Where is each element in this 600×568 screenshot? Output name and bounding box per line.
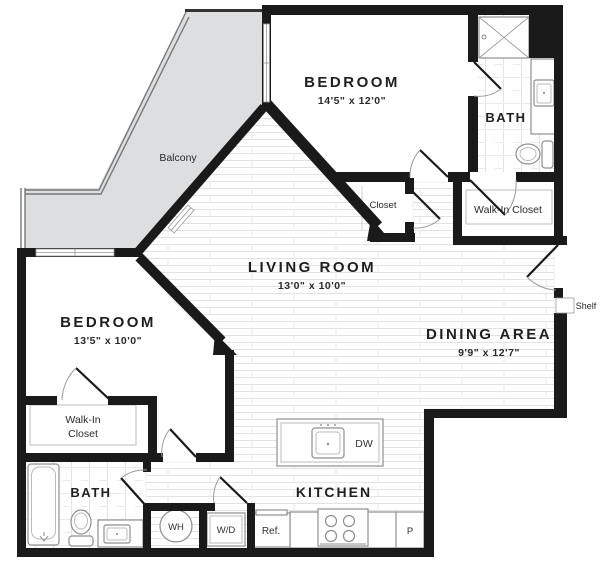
floor-plan: BEDROOM 14'5" x 12'0" BATH Walk-In Close…: [0, 0, 600, 563]
closet-label: Closet: [370, 200, 397, 211]
living-room-dims: 13'0" x 10'0": [278, 280, 346, 292]
kitchen-label: KITCHEN: [296, 484, 372, 500]
stove: [318, 509, 368, 546]
shelf-label: Shelf: [576, 301, 597, 311]
dishwasher-label: DW: [355, 438, 373, 450]
walkin-left-label-line1: Walk-In: [65, 414, 100, 426]
bedroom-top-dims: 14'5" x 12'0": [318, 95, 386, 107]
vanity-bottom: [98, 520, 143, 547]
balcony-label: Balcony: [159, 152, 197, 164]
pantry-label: P: [407, 526, 413, 537]
dining-area-label: DINING AREA: [426, 326, 552, 343]
dining-area-dims: 9'9" x 12'7": [458, 347, 520, 359]
vanity-top: [531, 59, 558, 134]
bedroom-top-label: BEDROOM: [304, 74, 400, 91]
floor-plan-svg: BEDROOM 14'5" x 12'0" BATH Walk-In Close…: [0, 0, 600, 563]
living-room-label: LIVING ROOM: [248, 259, 376, 276]
walkin-left-label-line2: Closet: [68, 428, 98, 440]
bedroom-left-dims: 13'5" x 10'0": [74, 335, 142, 347]
shower: [479, 17, 529, 58]
bath-bottom-label: BATH: [70, 485, 111, 500]
bathtub: [28, 464, 59, 545]
bath-top-label: BATH: [485, 110, 526, 125]
shelf-nook: [556, 298, 574, 313]
toilet-bottom: [69, 510, 93, 546]
water-heater-label: WH: [168, 522, 184, 533]
refrigerator-label: Ref.: [262, 526, 280, 537]
bedroom-left-label: BEDROOM: [60, 314, 156, 331]
washer-dryer-label: W/D: [217, 525, 236, 536]
walkin-top-label: Walk-In Closet: [474, 204, 542, 216]
